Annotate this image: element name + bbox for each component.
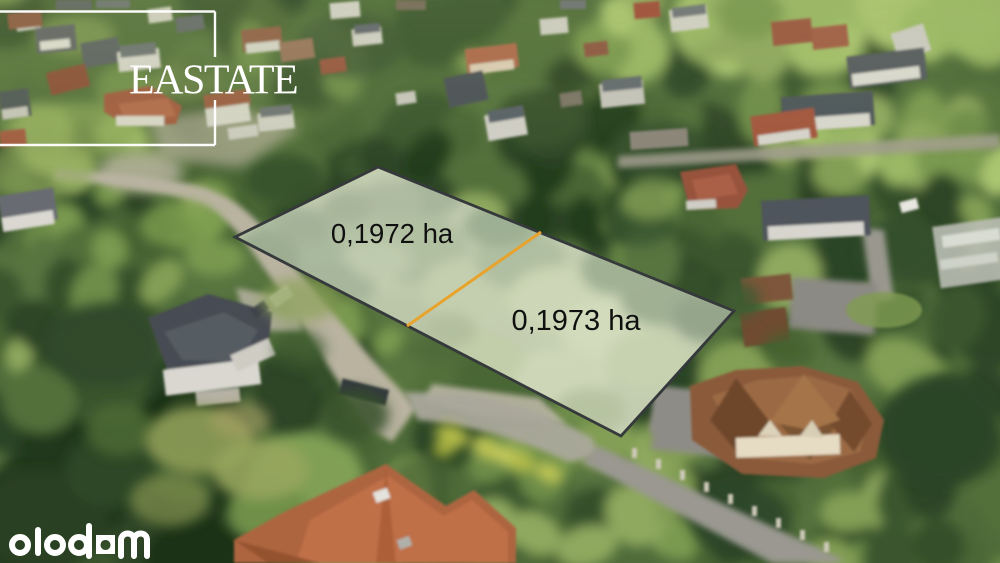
svg-text:0,1973 ha: 0,1973 ha — [511, 305, 641, 337]
svg-text:0,1972 ha: 0,1972 ha — [331, 218, 454, 249]
svg-text:EASTATE: EASTATE — [129, 58, 297, 104]
